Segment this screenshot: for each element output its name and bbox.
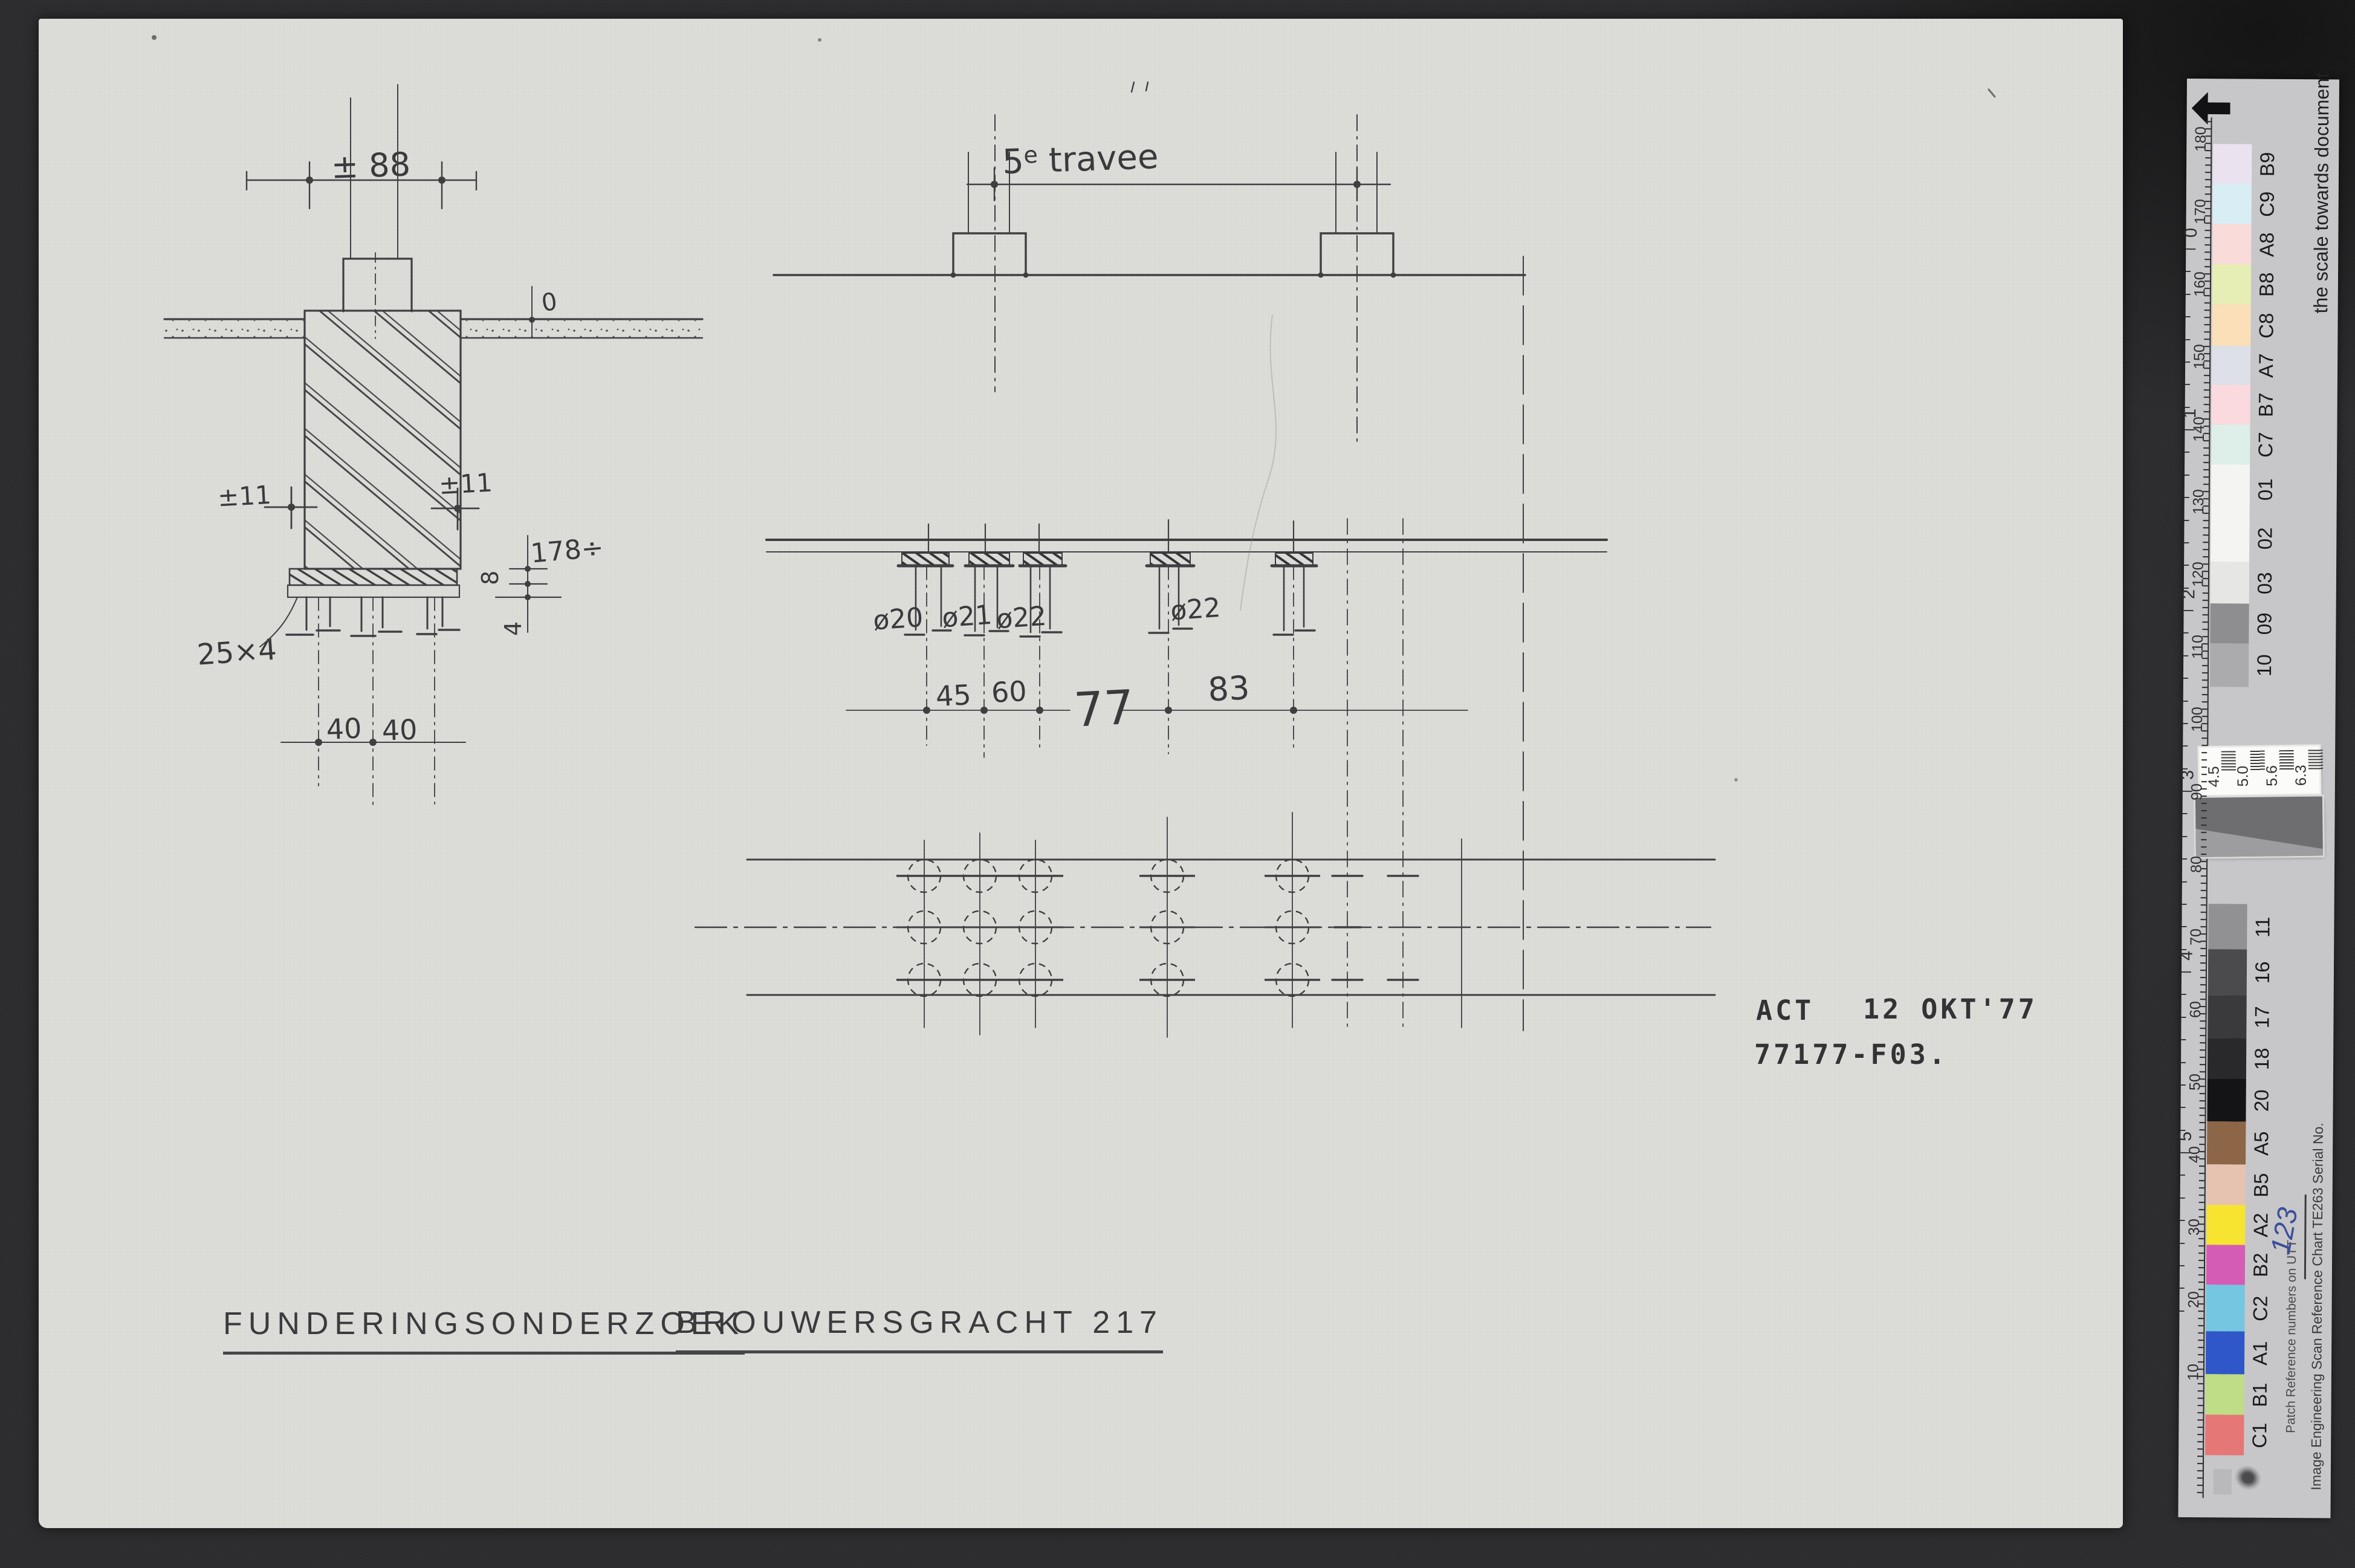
patch-label-11: 11	[2251, 916, 2274, 937]
inch-tick-major	[2183, 791, 2192, 792]
ruler-tick	[2200, 1078, 2205, 1080]
patch-B9	[2213, 144, 2252, 184]
ruler-tick	[2199, 1187, 2204, 1188]
inch-tick-minor	[2181, 1062, 2186, 1063]
ruler-tick	[2201, 854, 2206, 855]
ruler-tick	[2201, 803, 2207, 804]
inch-tick-minor	[2180, 1130, 2185, 1131]
patch-label-B7: B7	[2255, 393, 2278, 418]
patch-B2	[2206, 1245, 2245, 1285]
ruler-tick	[2201, 883, 2206, 884]
ruler-tick	[2200, 1115, 2205, 1116]
ruler-tick	[2203, 556, 2208, 557]
patch-18	[2208, 1038, 2246, 1078]
resolution-stripes	[2250, 751, 2266, 771]
ruler-mm-20: 20	[2185, 1291, 2203, 1308]
ruler-tick	[2204, 397, 2209, 398]
ruler-tick	[2200, 1057, 2205, 1058]
inch-tick-minor	[2184, 565, 2189, 566]
patch-label-A7: A7	[2255, 354, 2278, 378]
patch-label-C8: C8	[2255, 313, 2278, 338]
ruler-tick	[2198, 1376, 2203, 1377]
patch-B1	[2205, 1374, 2244, 1414]
inch-tick-minor	[2184, 542, 2189, 543]
inch-tick-minor	[2183, 632, 2188, 633]
ruler-mm-130: 130	[2190, 489, 2208, 514]
ruler-tick	[2202, 658, 2208, 659]
ruler-tick	[2203, 476, 2209, 478]
ruler-mm-150: 150	[2191, 344, 2209, 369]
ruler-tick	[2197, 1492, 2203, 1493]
ruler-tick	[2200, 1100, 2205, 1101]
inch-tick-minor	[2186, 316, 2191, 317]
ruler-tick	[2200, 919, 2206, 920]
ruler-tick	[2201, 752, 2207, 753]
ruler-tick	[2201, 795, 2207, 797]
patch-label-02: 02	[2253, 527, 2276, 549]
ruler-mm-50: 50	[2186, 1074, 2204, 1090]
ruler-tick	[2200, 1049, 2205, 1051]
ruler-tick	[2205, 222, 2211, 224]
ruler-mm-90: 90	[2188, 783, 2206, 800]
patch-C1	[2205, 1414, 2244, 1455]
ruler-tick	[2203, 578, 2208, 579]
imprint-text: Image Engineering Scan Reference Chart T…	[2308, 1123, 2327, 1490]
ruler-tick	[2200, 991, 2206, 993]
patch-label-09: 09	[2253, 612, 2276, 635]
ruler-tick	[2201, 737, 2207, 739]
ruler-tick	[2201, 774, 2207, 775]
ruler-tick	[2197, 1470, 2203, 1471]
ruler-mm-70: 70	[2188, 928, 2205, 945]
ruler-tick	[2199, 1194, 2204, 1196]
ruler-tick	[2204, 309, 2210, 311]
scanned-archive-image: ± 88 0 ±11 ±11 40 40 25×4	[0, 0, 2355, 1568]
patch-C2	[2206, 1285, 2244, 1331]
ruler-tick	[2205, 186, 2211, 187]
patch-label-18: 18	[2250, 1048, 2273, 1070]
inch-tick-minor	[2185, 452, 2189, 453]
inch-tick-major	[2186, 248, 2195, 250]
ruler-tick	[2201, 759, 2207, 760]
ruler-tick	[2205, 179, 2211, 180]
ruler-tick	[2199, 1165, 2204, 1167]
ruler-tick	[2204, 280, 2210, 282]
scale-direction-text: the scale towards document	[2310, 73, 2333, 314]
ruler-tick	[2204, 244, 2210, 245]
inch-tick-minor	[2180, 1174, 2185, 1176]
ruler-tick	[2203, 585, 2208, 586]
ruler-inch-3: 3	[2178, 770, 2198, 780]
ruler-tick	[2200, 933, 2206, 935]
ruler-tick	[2205, 215, 2211, 216]
ruler-tick	[2199, 1209, 2204, 1210]
inch-tick-minor	[2181, 1107, 2186, 1108]
inch-tick-minor	[2181, 1039, 2186, 1040]
patch-label-10: 10	[2253, 654, 2276, 676]
ruler-tick	[2198, 1347, 2203, 1348]
ruler-tick	[2203, 614, 2208, 615]
drawing-sheet	[39, 19, 2123, 1528]
patch-label-B5: B5	[2250, 1173, 2273, 1197]
patch-label-C2: C2	[2249, 1295, 2272, 1321]
ruler-tick	[2203, 600, 2208, 601]
ruler-mm-160: 160	[2191, 271, 2209, 297]
ruler-tick	[2201, 846, 2206, 847]
inch-tick-minor	[2183, 678, 2188, 679]
ruler-tick	[2197, 1434, 2203, 1435]
ruler-tick	[2201, 730, 2207, 731]
ink-smudge	[2226, 1456, 2271, 1500]
ruler-tick	[2198, 1296, 2204, 1297]
ruler-tick	[2205, 128, 2211, 129]
patch-01	[2211, 464, 2250, 514]
ruler-tick	[2205, 150, 2211, 151]
ruler-tick	[2198, 1252, 2204, 1254]
calibration-strip: the scale towards document 4.55.05.66.3 …	[2178, 79, 2339, 1518]
ruler-tick	[2197, 1441, 2203, 1442]
ruler-tick	[2199, 1173, 2204, 1174]
title-left: FUNDERINGSONDERZOEK	[223, 1306, 745, 1355]
patch-C9	[2213, 184, 2252, 224]
ruler-tick	[2200, 1020, 2205, 1022]
ruler-tick	[2202, 679, 2208, 681]
inch-tick-minor	[2180, 1197, 2185, 1199]
ruler-tick	[2204, 288, 2210, 289]
gray-reference-sticker	[2195, 797, 2323, 857]
ruler-tick	[2197, 1448, 2203, 1450]
resolution-stripes	[2279, 750, 2295, 771]
patch-label-C9: C9	[2256, 192, 2279, 217]
checker-target-mid1	[2227, 696, 2258, 724]
inch-tick-minor	[2183, 745, 2188, 747]
inch-tick-minor	[2186, 294, 2191, 295]
patch-10	[2210, 643, 2249, 687]
ruler-tick	[2205, 135, 2211, 137]
inch-tick-minor	[2184, 588, 2189, 589]
ruler-tick	[2205, 143, 2211, 144]
ruler-tick	[2199, 1158, 2204, 1159]
ruler-tick	[2200, 1064, 2205, 1065]
ruler-tick	[2203, 469, 2209, 470]
ruler-tick	[2197, 1456, 2203, 1457]
ruler-tick	[2206, 121, 2211, 122]
inch-tick-minor	[2185, 407, 2190, 408]
ruler-mm-120: 120	[2189, 562, 2207, 587]
title-right: BROUWERSGRACHT 217	[676, 1304, 1163, 1353]
patch-label-C1: C1	[2248, 1422, 2271, 1448]
ruler-tick	[2203, 498, 2209, 499]
inch-tick-major	[2185, 429, 2194, 430]
ruler-tick	[2198, 1383, 2203, 1384]
ruler-tick	[2198, 1245, 2204, 1246]
ruler-tick	[2201, 897, 2206, 898]
patch-B7	[2212, 384, 2250, 424]
patch-label-16: 16	[2251, 961, 2274, 983]
ruler-tick	[2204, 353, 2209, 354]
ruler-tick	[2200, 1042, 2205, 1043]
patch-label-A1: A1	[2249, 1341, 2272, 1366]
ruler-tick	[2198, 1318, 2203, 1319]
ruler-tick	[2200, 999, 2206, 1000]
ruler-tick	[2199, 1202, 2204, 1203]
resolution-value-5.6: 5.6	[2263, 765, 2281, 786]
ruler-tick	[2204, 339, 2209, 340]
ruler-tick	[2200, 1006, 2206, 1007]
ruler-tick	[2203, 527, 2208, 528]
inch-tick-major	[2180, 1152, 2190, 1153]
ruler-mm-10: 10	[2185, 1364, 2202, 1381]
patch-label-B2: B2	[2249, 1252, 2272, 1277]
ruler-tick	[2205, 208, 2211, 209]
ruler-inch-1: 1	[2180, 409, 2200, 418]
ruler-tick	[2205, 201, 2211, 202]
ruler-tick	[2205, 172, 2211, 173]
ruler-tick	[2202, 701, 2208, 702]
inch-tick-minor	[2182, 881, 2187, 883]
patch-label-A2: A2	[2249, 1213, 2272, 1237]
ruler-tick	[2204, 259, 2210, 260]
patch-A5	[2207, 1121, 2246, 1164]
ruler-tick	[2198, 1325, 2203, 1326]
inch-tick-minor	[2180, 1265, 2185, 1266]
patch-A2	[2206, 1205, 2245, 1245]
inch-tick-minor	[2181, 1084, 2186, 1086]
patch-09	[2210, 603, 2249, 643]
ruler-tick	[2204, 273, 2210, 274]
ruler-tick	[2198, 1405, 2203, 1406]
ruler-tick	[2201, 766, 2207, 768]
ruler-inch-4: 4	[2177, 951, 2197, 961]
patch-label-03: 03	[2253, 572, 2276, 594]
patch-label-C7: C7	[2254, 432, 2277, 458]
ruler-mm-40: 40	[2186, 1146, 2204, 1163]
ruler-tick	[2198, 1398, 2203, 1399]
ruler-tick	[2202, 672, 2208, 673]
ruler-tick	[2203, 462, 2209, 463]
ruler-tick	[2199, 1129, 2204, 1130]
inch-tick-minor	[2183, 768, 2188, 769]
gray-reference-light-zone	[2195, 825, 2323, 857]
ruler-tick	[2200, 970, 2206, 971]
patch-16	[2208, 949, 2247, 995]
ruler-tick	[2200, 1086, 2205, 1087]
inch-tick-minor	[2182, 994, 2186, 995]
ruler-tick	[2200, 1035, 2205, 1036]
ruler-tick	[2198, 1361, 2203, 1362]
ruler-tick	[2201, 810, 2207, 811]
ruler-tick	[2201, 824, 2206, 826]
ruler-tick	[2201, 745, 2207, 746]
ink-smudge-small	[2214, 1469, 2232, 1494]
ruler-tick	[2202, 716, 2208, 717]
ruler-tick	[2198, 1289, 2204, 1290]
ruler-tick	[2198, 1390, 2203, 1391]
ruler-tick	[2197, 1419, 2203, 1421]
ruler-tick	[2201, 875, 2206, 876]
inch-tick-minor	[2183, 701, 2188, 702]
ruler-tick	[2205, 193, 2211, 195]
resolution-value-6.3: 6.3	[2292, 765, 2310, 786]
ruler-tick	[2202, 687, 2208, 688]
ruler-tick	[2200, 955, 2206, 956]
ruler-tick	[2197, 1477, 2203, 1479]
ruler-tick	[2198, 1310, 2204, 1312]
patch-C8	[2212, 304, 2250, 346]
ruler-tick	[2201, 839, 2206, 840]
inch-tick-minor	[2180, 1288, 2185, 1289]
ruler-mm-100: 100	[2189, 707, 2206, 732]
ruler-tick	[2204, 404, 2209, 405]
ruler-tick	[2199, 1151, 2204, 1152]
inch-tick-major	[2182, 971, 2191, 973]
ruler-tick	[2203, 505, 2209, 507]
patch-label-B9: B9	[2256, 152, 2279, 177]
patch-03	[2211, 562, 2249, 603]
ruler-mm-110: 110	[2189, 635, 2207, 659]
inch-tick-minor	[2183, 723, 2188, 724]
ruler-tick	[2204, 418, 2209, 420]
inch-tick-major	[2184, 610, 2194, 611]
ruler-tick	[2204, 331, 2209, 332]
ruler-tick	[2197, 1427, 2203, 1428]
ruler-tick	[2200, 1071, 2205, 1072]
ruler-tick	[2204, 375, 2209, 376]
patch-B5	[2207, 1164, 2246, 1205]
ruler-tick	[2203, 592, 2208, 594]
patch-17	[2208, 995, 2246, 1038]
inch-tick-minor	[2180, 1310, 2185, 1312]
ruler-tick	[2200, 1093, 2205, 1094]
serial-line	[2304, 1194, 2307, 1279]
ruler-tick	[2200, 1107, 2205, 1109]
ruler-tick	[2199, 1136, 2204, 1138]
ruler-tick	[2203, 549, 2208, 550]
checker-target-top	[2230, 86, 2262, 117]
ruler-tick	[2203, 607, 2208, 608]
ruler-tick	[2202, 665, 2208, 666]
ruler-tick	[2204, 317, 2210, 318]
inch-tick-minor	[2185, 384, 2190, 385]
ruler-tick	[2204, 251, 2210, 253]
ruler-tick	[2203, 491, 2209, 492]
checker-target-mid2	[2227, 872, 2257, 899]
ruler-tick	[2197, 1463, 2203, 1464]
inch-tick-minor	[2180, 1220, 2185, 1221]
patch-02	[2211, 514, 2249, 562]
inch-tick-minor	[2182, 858, 2187, 860]
ruler-tick	[2199, 1180, 2204, 1181]
inch-tick-minor	[2180, 1243, 2185, 1244]
ruler-tick	[2198, 1231, 2204, 1232]
ruler-tick	[2203, 542, 2208, 543]
ruler-tick	[2203, 534, 2208, 536]
inch-tick-minor	[2185, 520, 2189, 521]
ruler-mm-80: 80	[2188, 856, 2205, 873]
ruler-tick	[2203, 440, 2209, 441]
ruler-tick	[2199, 1144, 2204, 1145]
patch-label-01: 01	[2254, 478, 2277, 501]
ruler-tick	[2203, 447, 2209, 449]
ruler-tick	[2201, 832, 2206, 833]
ruler-mm-60: 60	[2187, 1001, 2204, 1018]
ruler-tick	[2200, 977, 2206, 978]
inch-tick-minor	[2183, 813, 2188, 814]
ruler-tick	[2203, 426, 2209, 427]
patch-label-B1: B1	[2249, 1382, 2272, 1407]
ruler-tick	[2201, 817, 2207, 818]
ruler-tick	[2198, 1260, 2204, 1261]
ruler-tick	[2198, 1354, 2203, 1355]
ruler-inch-5: 5	[2176, 1132, 2196, 1141]
ruler-tick	[2204, 411, 2209, 412]
ruler-tick	[2198, 1216, 2204, 1217]
patch-A7	[2212, 346, 2250, 384]
inch-tick-minor	[2182, 926, 2186, 927]
ruler-tick	[2198, 1274, 2204, 1275]
ruler-tick	[2205, 157, 2211, 158]
ruler-tick	[2201, 912, 2206, 913]
patch-label-B8: B8	[2255, 273, 2278, 297]
ruler-tick	[2202, 650, 2208, 652]
inch-tick-minor	[2185, 497, 2189, 498]
ruler-mm-30: 30	[2186, 1219, 2203, 1236]
ruler-tick	[2198, 1369, 2203, 1370]
ruler-tick	[2203, 484, 2209, 485]
inch-tick-minor	[2183, 655, 2188, 656]
patch-A8	[2212, 224, 2251, 264]
resolution-value-5.0: 5.0	[2234, 766, 2252, 787]
patch-note-text: Patch Reference numbers on UTT	[2284, 1240, 2299, 1433]
ruler-tick	[2200, 948, 2206, 949]
ruler-tick	[2204, 324, 2210, 325]
stamp-agency: ACT	[1756, 994, 1814, 1026]
inch-tick-minor	[2185, 475, 2189, 476]
ruler-tick	[2200, 1028, 2205, 1029]
ruler-tick	[2204, 368, 2209, 369]
ruler-tick	[2203, 563, 2208, 565]
ruler-tick	[2203, 455, 2209, 456]
inch-tick-minor	[2185, 361, 2190, 363]
ruler-tick	[2201, 861, 2206, 862]
inch-tick-minor	[2185, 339, 2190, 340]
resolution-value-4.5: 4.5	[2205, 766, 2223, 787]
ruler-tick	[2202, 694, 2208, 695]
ruler-tick	[2201, 723, 2207, 724]
ruler-tick	[2203, 621, 2208, 623]
ruler-tick	[2197, 1485, 2203, 1486]
ruler-tick	[2204, 295, 2210, 296]
inch-tick-minor	[2182, 1017, 2186, 1018]
patch-label-17: 17	[2250, 1006, 2273, 1028]
ruler-tick	[2202, 643, 2208, 644]
patch-A1	[2206, 1331, 2244, 1374]
patch-label-20: 20	[2250, 1089, 2273, 1112]
ruler-mm-170: 170	[2192, 199, 2209, 224]
ruler-tick	[2200, 941, 2206, 942]
ruler-tick	[2198, 1281, 2204, 1283]
ruler-tick	[2201, 788, 2207, 789]
ruler-tick	[2200, 1013, 2206, 1014]
stamp-date: 12 OKT'77	[1863, 993, 2038, 1025]
ruler-tick	[2198, 1223, 2204, 1225]
ruler-tick	[2200, 962, 2206, 964]
resolution-stripes	[2308, 750, 2324, 770]
ruler-tick	[2199, 1122, 2204, 1123]
ruler-inch-0: 0	[2182, 228, 2201, 238]
stamp-drawing-number: 77177-F03.	[1754, 1038, 1948, 1071]
ruler-tick	[2198, 1303, 2204, 1304]
